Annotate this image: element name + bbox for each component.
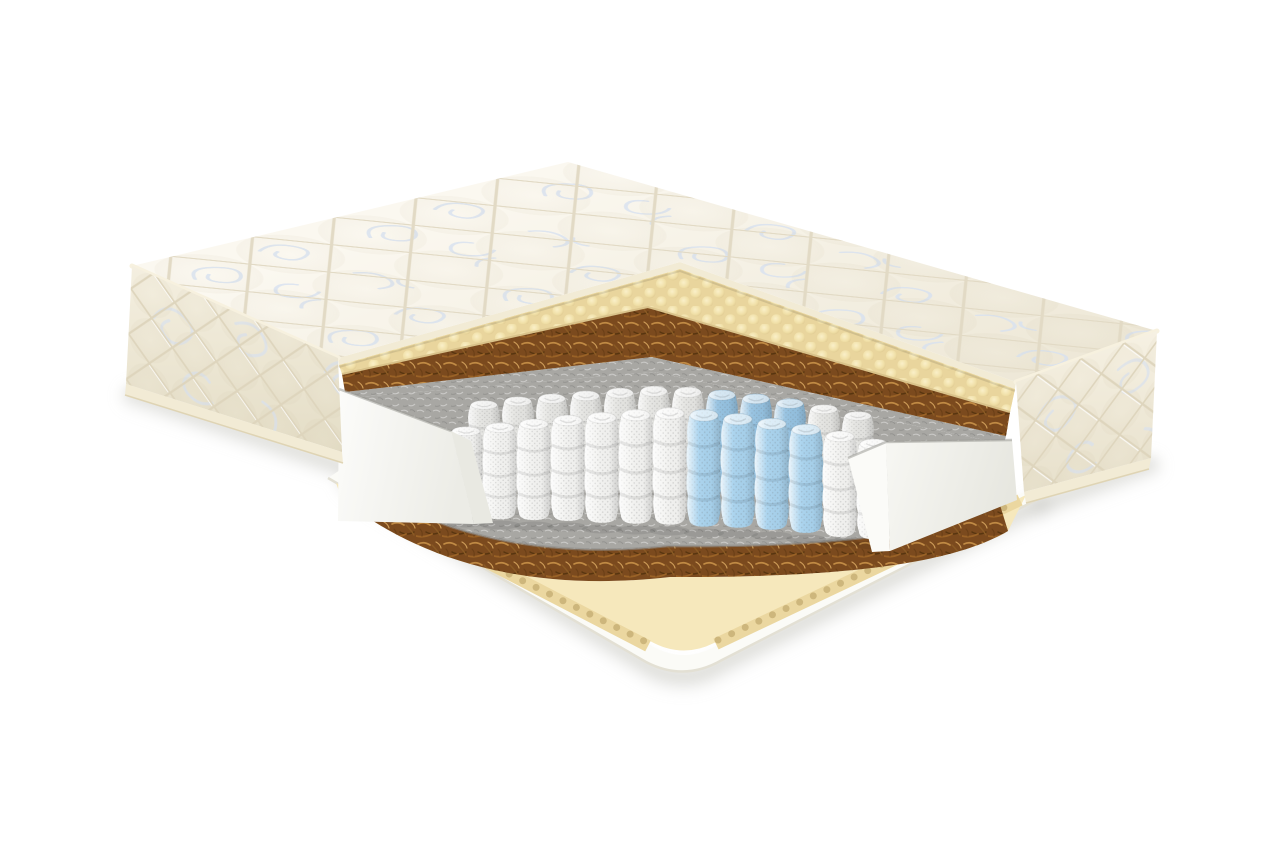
spring-shadow bbox=[752, 532, 792, 541]
spring-shadow bbox=[820, 539, 860, 548]
pocket-spring bbox=[585, 412, 620, 523]
pocket-spring-blue bbox=[789, 424, 824, 533]
pocket-spring bbox=[551, 415, 586, 521]
spring-shadow bbox=[548, 523, 588, 532]
spring-shadow bbox=[616, 526, 656, 535]
spring-shadow bbox=[650, 527, 690, 536]
spring-shadow bbox=[684, 529, 724, 538]
spring-shadow bbox=[718, 530, 758, 539]
pocket-spring-blue bbox=[755, 418, 790, 530]
pocket-spring-blue bbox=[687, 409, 722, 526]
pocket-spring bbox=[653, 407, 688, 524]
pocket-spring bbox=[517, 419, 552, 520]
pocket-spring-blue bbox=[721, 413, 756, 528]
spring-shadow bbox=[582, 525, 622, 534]
product-image bbox=[0, 0, 1280, 854]
pocket-spring bbox=[619, 409, 654, 524]
spring-shadow bbox=[786, 535, 826, 544]
pocket-spring bbox=[823, 431, 858, 537]
mattress-render bbox=[0, 0, 1280, 854]
spring-shadow bbox=[514, 522, 554, 531]
